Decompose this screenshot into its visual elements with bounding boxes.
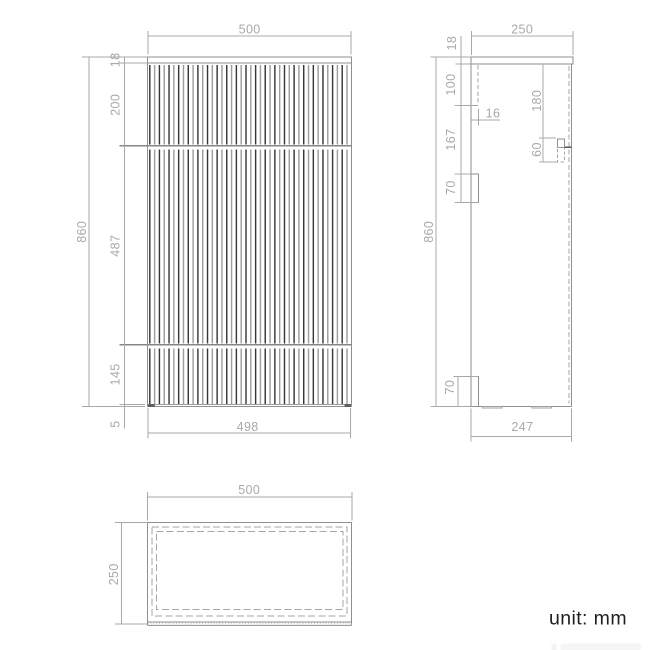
- svg-text:500: 500: [238, 483, 260, 497]
- svg-text:unit: mm: unit: mm: [549, 608, 627, 630]
- svg-text:60: 60: [530, 142, 544, 157]
- svg-text:145: 145: [109, 363, 123, 385]
- svg-text:500: 500: [239, 22, 261, 36]
- svg-text:18: 18: [109, 52, 123, 67]
- svg-text:70: 70: [443, 380, 457, 395]
- svg-text:860: 860: [422, 221, 436, 243]
- svg-text:18: 18: [445, 36, 459, 51]
- svg-text:5: 5: [109, 420, 123, 427]
- svg-text:100: 100: [444, 74, 458, 96]
- svg-text:860: 860: [75, 221, 89, 243]
- svg-text:16: 16: [486, 107, 501, 121]
- svg-text:70: 70: [444, 180, 458, 195]
- svg-text:167: 167: [444, 129, 458, 151]
- svg-text:180: 180: [530, 90, 544, 112]
- svg-text:498: 498: [237, 420, 259, 434]
- svg-text:247: 247: [511, 420, 533, 434]
- svg-text:200: 200: [109, 94, 123, 116]
- svg-text:250: 250: [107, 563, 121, 585]
- svg-text:487: 487: [109, 235, 123, 257]
- svg-text:250: 250: [511, 22, 533, 36]
